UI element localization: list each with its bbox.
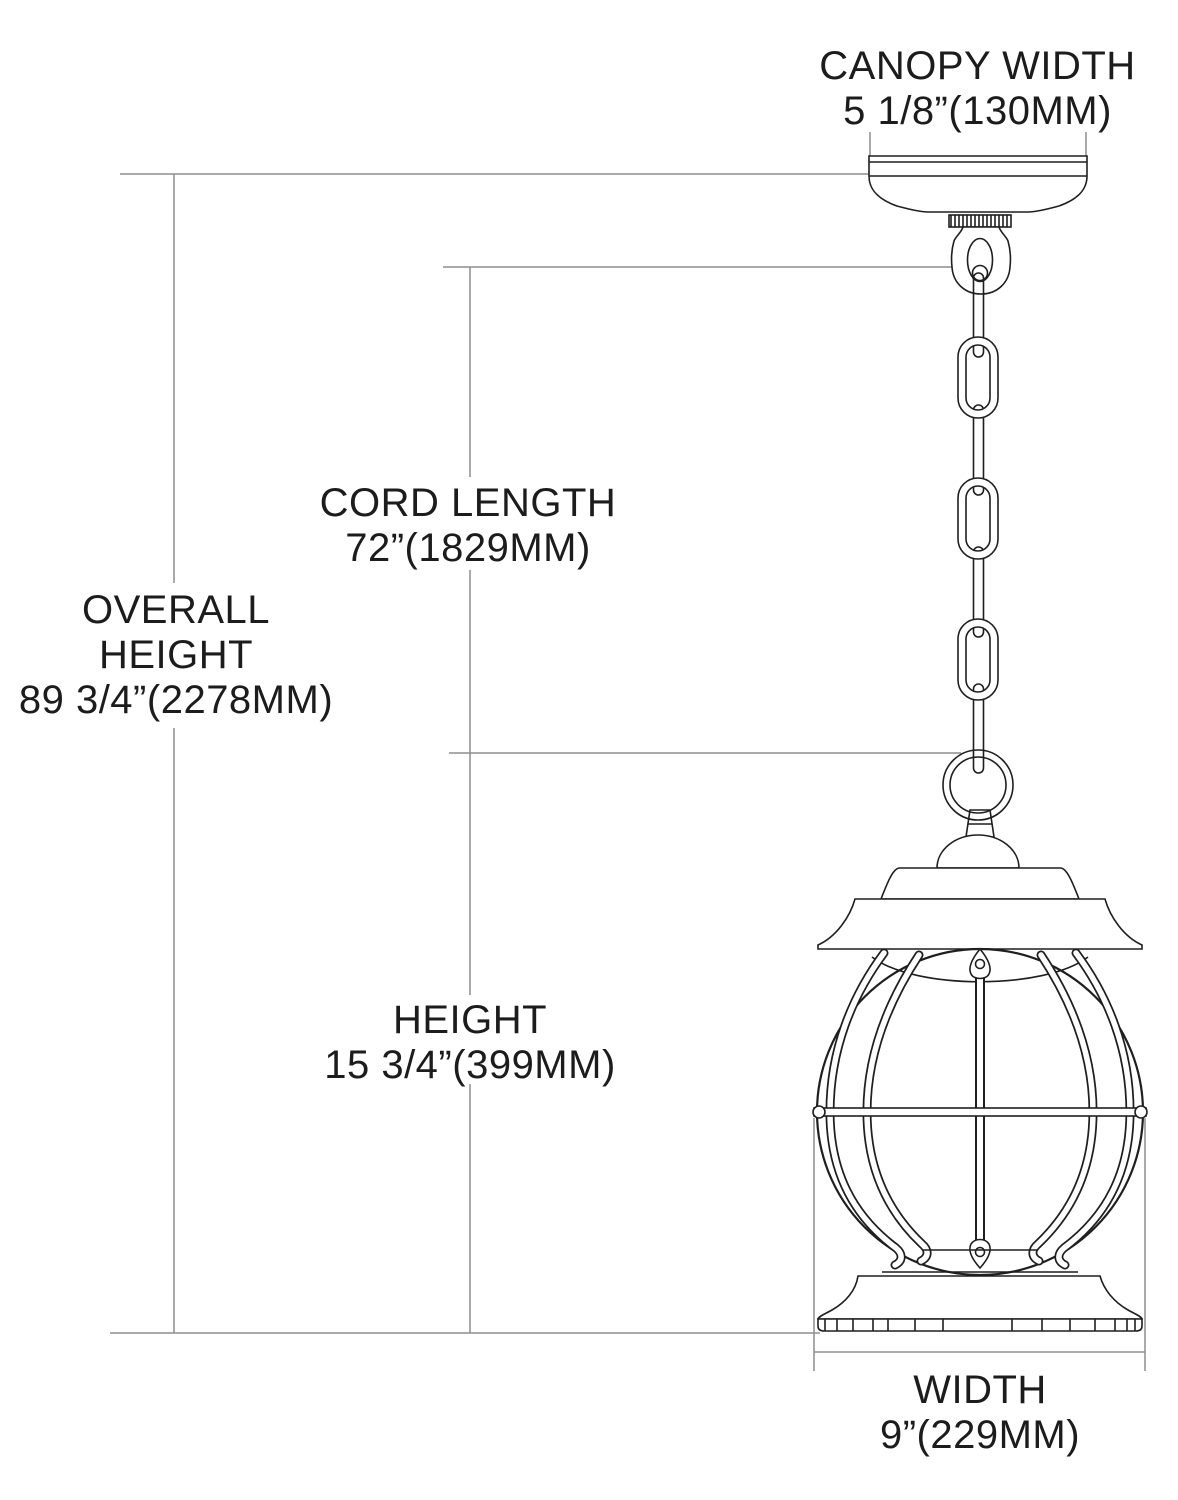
base-skirt: [818, 1276, 1142, 1319]
overall-height-value: 89 3/4”(2278MM): [0, 678, 352, 723]
hanging-ring: [943, 750, 1013, 837]
cord-length-label: CORD LENGTH 72”(1829MM): [268, 481, 668, 571]
width-label: WIDTH 9”(229MM): [780, 1368, 1178, 1458]
globe-and-cage: [813, 949, 1147, 1275]
canopy-width-name: CANOPY WIDTH: [755, 44, 1178, 89]
lantern-base: [818, 1276, 1142, 1331]
width-name: WIDTH: [780, 1368, 1178, 1413]
band-end-left: [813, 1106, 825, 1118]
width-value: 9”(229MM): [780, 1413, 1178, 1458]
cord-length-name: CORD LENGTH: [268, 481, 668, 526]
mounting-nut: [949, 215, 1011, 227]
finial-dome: [937, 835, 1019, 868]
center-rib-top-eyelet: [970, 949, 990, 979]
canopy-width-label: CANOPY WIDTH 5 1/8”(130MM): [755, 44, 1178, 134]
roof-tier-lower: [818, 899, 1142, 949]
center-rib-bottom-eyelet: [970, 1240, 990, 1269]
overall-height-name-line1: OVERALL: [0, 588, 352, 633]
band-end-right: [1135, 1106, 1147, 1118]
lantern-roof: [818, 835, 1142, 949]
height-name: HEIGHT: [270, 998, 670, 1043]
chain-link-face: [958, 337, 998, 418]
chain: [958, 273, 998, 773]
height-label: HEIGHT 15 3/4”(399MM): [270, 998, 670, 1088]
hanging-loop-bracket: [952, 227, 1011, 294]
canopy: [869, 156, 1087, 212]
pendant-dimension-diagram: CANOPY WIDTH 5 1/8”(130MM) CORD LENGTH 7…: [0, 0, 1178, 1500]
chain-link-face: [958, 619, 998, 700]
globe-band: [813, 1106, 1147, 1118]
overall-height-label: OVERALL HEIGHT 89 3/4”(2278MM): [0, 588, 352, 723]
roof-tier-upper: [881, 868, 1079, 899]
height-value: 15 3/4”(399MM): [270, 1043, 670, 1088]
canopy-width-value: 5 1/8”(130MM): [755, 89, 1178, 134]
base-rim: [818, 1319, 1142, 1331]
fixture-line-drawing: [0, 0, 1178, 1500]
cord-length-value: 72”(1829MM): [268, 526, 668, 571]
overall-height-name-line2: HEIGHT: [0, 633, 352, 678]
